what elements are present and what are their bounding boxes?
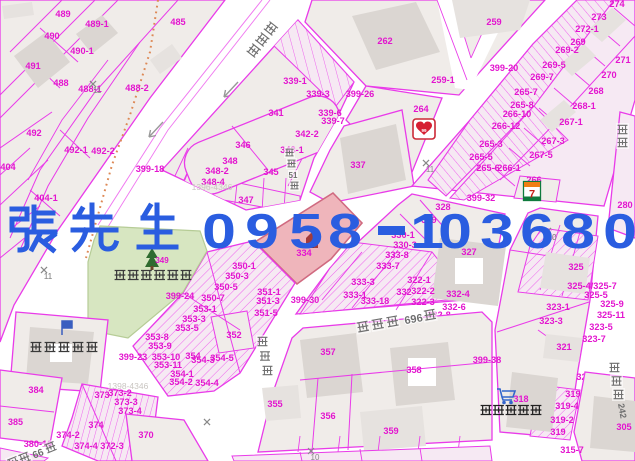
svg-text:404-1: 404-1 [34, 193, 58, 203]
svg-text:262: 262 [377, 36, 392, 46]
svg-text:265-6: 265-6 [476, 163, 500, 173]
svg-text:268-1: 268-1 [572, 101, 596, 111]
svg-text:353-5: 353-5 [175, 323, 199, 333]
svg-text:10: 10 [311, 453, 320, 461]
svg-text:11: 11 [44, 272, 53, 281]
svg-text:399-30: 399-30 [291, 295, 320, 305]
svg-text:269-7: 269-7 [530, 72, 554, 82]
svg-text:374-4: 374-4 [74, 441, 98, 451]
svg-text:265-7: 265-7 [514, 87, 538, 97]
svg-text:333-7: 333-7 [376, 261, 400, 271]
svg-text:492: 492 [26, 128, 41, 138]
svg-text:322-2: 322-2 [411, 286, 435, 296]
svg-text:339-7: 339-7 [321, 116, 345, 126]
svg-text:358: 358 [406, 365, 421, 375]
svg-text:266-10: 266-10 [503, 109, 532, 119]
svg-text:99: 99 [421, 128, 427, 133]
svg-text:489-1: 489-1 [85, 19, 109, 29]
svg-text:490: 490 [44, 31, 59, 41]
svg-text:319: 319 [550, 427, 565, 437]
svg-text:267-3: 267-3 [541, 136, 565, 146]
svg-text:374: 374 [88, 420, 104, 430]
svg-text:266-12: 266-12 [492, 121, 521, 131]
svg-text:384: 384 [28, 385, 44, 395]
svg-text:266-1: 266-1 [497, 163, 521, 173]
svg-text:323-5: 323-5 [589, 322, 613, 332]
svg-text:339-3: 339-3 [306, 89, 330, 99]
svg-text:404: 404 [0, 162, 16, 172]
svg-text:348: 348 [222, 156, 237, 166]
svg-text:270: 270 [601, 70, 616, 80]
svg-text:337: 337 [350, 160, 365, 170]
svg-text:259: 259 [486, 17, 501, 27]
svg-text:259-1: 259-1 [431, 75, 455, 85]
svg-text:354-5: 354-5 [210, 353, 234, 363]
svg-text:323-1: 323-1 [546, 302, 570, 312]
svg-text:350-5: 350-5 [214, 282, 238, 292]
svg-text:0: 0 [438, 204, 472, 259]
svg-text:323-3: 323-3 [539, 316, 563, 326]
svg-text:349: 349 [155, 256, 169, 265]
svg-text:399-32: 399-32 [467, 193, 496, 203]
svg-text:332-4: 332-4 [446, 289, 470, 299]
svg-text:485: 485 [170, 17, 185, 27]
svg-text:0: 0 [202, 204, 236, 259]
svg-text:267-1: 267-1 [559, 117, 583, 127]
svg-text:332: 332 [396, 287, 411, 297]
svg-text:322-1: 322-1 [407, 275, 431, 285]
svg-text:399-38: 399-38 [473, 355, 502, 365]
svg-text:350-7: 350-7 [201, 293, 225, 303]
svg-text:1396-4346: 1396-4346 [192, 182, 233, 192]
svg-text:354-4: 354-4 [195, 378, 219, 388]
svg-text:9: 9 [245, 204, 279, 259]
svg-text:374-2: 374-2 [56, 430, 80, 440]
svg-text:325-9: 325-9 [600, 299, 624, 309]
svg-text:265-5: 265-5 [469, 152, 493, 162]
svg-text:488: 488 [53, 78, 68, 88]
svg-text:342-2: 342-2 [295, 129, 319, 139]
svg-text:269-5: 269-5 [542, 60, 566, 70]
svg-text:269-2: 269-2 [555, 45, 579, 55]
svg-text:357: 357 [320, 347, 335, 357]
svg-text:323-7: 323-7 [582, 334, 606, 344]
svg-text:315-7: 315-7 [560, 445, 584, 455]
svg-text:399-20: 399-20 [490, 63, 519, 73]
svg-text:345: 345 [263, 167, 278, 177]
svg-text:399-18: 399-18 [136, 164, 165, 174]
svg-text:399-23: 399-23 [119, 352, 148, 362]
svg-text:372-3: 372-3 [100, 441, 124, 451]
svg-text:305: 305 [616, 422, 631, 432]
svg-text:265-3: 265-3 [479, 139, 503, 149]
svg-text:492-2: 492-2 [91, 146, 115, 156]
svg-text:489: 489 [55, 9, 70, 19]
svg-text:321: 321 [556, 342, 571, 352]
svg-text:11: 11 [426, 165, 435, 174]
svg-text:353-9: 353-9 [148, 341, 172, 351]
svg-text:490-1: 490-1 [70, 46, 94, 56]
svg-text:8: 8 [328, 204, 362, 259]
svg-text:333-18: 333-18 [361, 296, 390, 306]
svg-text:272-1: 272-1 [575, 24, 599, 34]
svg-text:359: 359 [383, 426, 398, 436]
svg-text:352: 352 [226, 330, 241, 340]
svg-text:11: 11 [93, 86, 102, 95]
svg-text:325: 325 [568, 262, 583, 272]
svg-text:0: 0 [603, 204, 635, 259]
svg-text:492-1: 492-1 [64, 145, 88, 155]
svg-text:3: 3 [480, 204, 514, 259]
svg-text:51: 51 [289, 171, 298, 180]
svg-text:385: 385 [8, 417, 23, 427]
svg-text:5: 5 [289, 204, 323, 259]
svg-text:339-1: 339-1 [283, 76, 307, 86]
svg-text:350-3: 350-3 [225, 271, 249, 281]
svg-text:354-2: 354-2 [169, 377, 193, 387]
svg-text:271: 271 [615, 55, 630, 65]
svg-text:399-26: 399-26 [346, 89, 375, 99]
svg-text:8: 8 [561, 204, 595, 259]
svg-text:1398-4346: 1398-4346 [108, 381, 149, 391]
svg-text:341: 341 [268, 108, 283, 118]
svg-text:318: 318 [513, 394, 528, 404]
svg-text:7: 7 [529, 189, 535, 201]
svg-text:351-3: 351-3 [256, 296, 280, 306]
svg-text:264: 264 [413, 104, 429, 114]
svg-text:333-8: 333-8 [385, 250, 409, 260]
svg-text:319-4: 319-4 [555, 401, 579, 411]
svg-text:346: 346 [235, 140, 250, 150]
svg-text:488-2: 488-2 [125, 83, 149, 93]
svg-text:333-3: 333-3 [351, 277, 375, 287]
svg-text:267-5: 267-5 [529, 150, 553, 160]
svg-text:274: 274 [609, 0, 625, 9]
svg-text:6: 6 [520, 204, 554, 259]
svg-text:325-11: 325-11 [597, 310, 625, 320]
svg-text:356: 356 [320, 411, 335, 421]
svg-text:273: 273 [591, 12, 606, 22]
svg-text:353-1: 353-1 [193, 304, 217, 314]
svg-text:348-2: 348-2 [205, 166, 229, 176]
svg-text:319-2: 319-2 [550, 415, 574, 425]
svg-text:491: 491 [25, 61, 40, 71]
svg-text:322-3: 322-3 [411, 297, 435, 307]
svg-text:350-1: 350-1 [232, 261, 256, 271]
svg-text:370: 370 [138, 430, 153, 440]
svg-text:351-5: 351-5 [254, 308, 278, 318]
svg-text:268: 268 [588, 86, 603, 96]
svg-text:399-24: 399-24 [166, 291, 195, 301]
svg-text:355: 355 [267, 399, 282, 409]
